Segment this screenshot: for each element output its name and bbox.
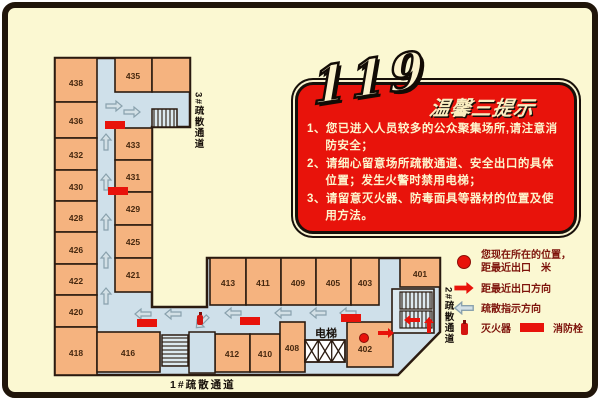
evac-direction-icon (452, 301, 476, 315)
legend-extinguisher-label: 灭火器 (481, 320, 511, 335)
room-412-label: 412 (225, 349, 239, 359)
fire-extinguisher-icon (460, 320, 469, 335)
room-438-label: 438 (69, 78, 83, 88)
room-425-label: 425 (126, 237, 140, 247)
room-402-label: 402 (358, 344, 372, 354)
room-433-label: 433 (126, 140, 140, 150)
room-401-label: 401 (413, 269, 427, 279)
banner-tips: 1、您已进入人员较多的公众聚集场所,请注意消防安全； 2、请细心留意场所疏散通道… (307, 121, 565, 226)
room-429-label: 429 (126, 204, 140, 214)
exit-passage-1 (189, 332, 215, 373)
room-428-label: 428 (69, 213, 83, 223)
room-403-label: 403 (358, 278, 372, 288)
room-409-label: 409 (291, 278, 305, 288)
room-410-label: 410 (258, 349, 272, 359)
legend-evac-direction: 疏散指示方向 (452, 300, 598, 315)
evacuation-sign: 电梯 (0, 0, 600, 400)
legend-equipment: 灭火器 消防栓 (452, 320, 598, 335)
room-418-label: 418 (69, 348, 83, 358)
room-421-label: 421 (126, 270, 140, 280)
room-422-label: 422 (69, 276, 83, 286)
banner-tip-3: 3、请留意灭火器、防毒面具等器材的位置及使用方法。 (307, 191, 565, 225)
room-436-label: 436 (69, 116, 83, 126)
room-431-label: 431 (126, 172, 140, 182)
legend-location-line2: 距最近出口 米 (481, 262, 571, 275)
room-405-label: 405 (326, 278, 340, 288)
room-430-label: 430 (69, 182, 83, 192)
legend-location-line1: 您现在所在的位置， (481, 249, 571, 262)
fire-hydrant-icon (520, 323, 544, 332)
banner-title: 温馨三提示 (427, 92, 537, 121)
staircase-3 (152, 109, 177, 127)
elevator-shaft (305, 340, 345, 362)
legend-exit-direction-label: 距最近出口方向 (481, 280, 551, 295)
staircase-1 (162, 335, 188, 366)
banner-tip-2: 2、请细心留意场所疏散通道、安全出口的具体位置；发生火警时禁用电梯； (307, 156, 565, 190)
elevator-label: 电梯 (315, 326, 337, 340)
current-location-dot (360, 334, 369, 343)
legend: 您现在所在的位置， 距最近出口 米 距最近出口方向 疏散指示方向 灭火器 消防栓 (452, 249, 598, 335)
room-426-label: 426 (69, 245, 83, 255)
legend-current-location: 您现在所在的位置， 距最近出口 米 (452, 249, 598, 275)
legend-evac-direction-label: 疏散指示方向 (481, 300, 541, 315)
current-location-icon (457, 255, 471, 269)
room-432-label: 432 (69, 150, 83, 160)
legend-hydrant-label: 消防栓 (553, 320, 583, 335)
room-top-corner (152, 58, 190, 92)
legend-exit-direction: 距最近出口方向 (452, 280, 598, 295)
stairway-3-label: 3#疏散通道 (192, 92, 202, 150)
room-408-label: 408 (285, 343, 299, 353)
room-413-label: 413 (221, 278, 235, 288)
room-411-label: 411 (256, 278, 270, 288)
stairway-1-label: 1#疏散通道 (170, 377, 236, 392)
stairway-2-label: 2#疏散通道 (442, 287, 452, 345)
room-420-label: 420 (69, 307, 83, 317)
banner-tip-1: 1、您已进入人员较多的公众聚集场所,请注意消防安全； (307, 121, 565, 155)
room-435-label: 435 (126, 71, 140, 81)
room-416-label: 416 (121, 348, 135, 358)
exit-direction-icon (452, 281, 476, 295)
